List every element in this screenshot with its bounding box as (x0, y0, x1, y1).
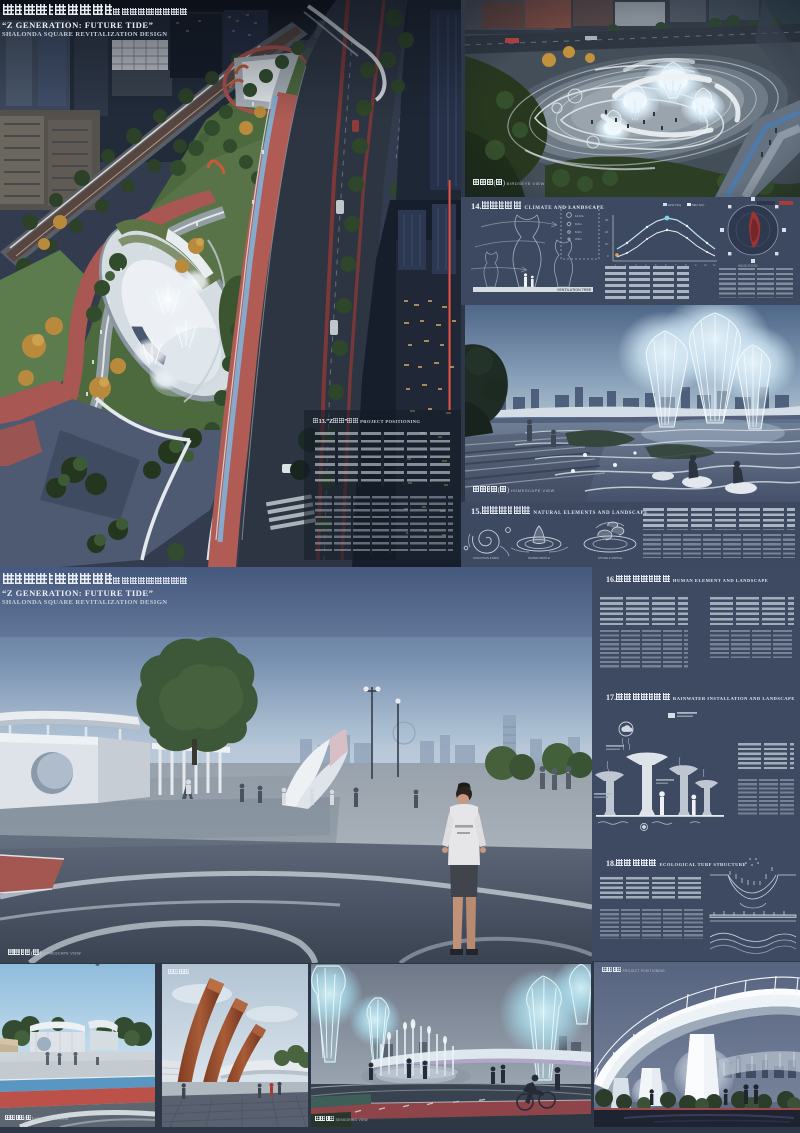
svg-text:6.0m: 6.0m (575, 230, 582, 234)
svg-text:3.0m: 3.0m (575, 237, 582, 241)
svg-text:0: 0 (607, 254, 609, 258)
svg-text:10: 10 (704, 263, 707, 267)
svg-text:12.0m: 12.0m (575, 214, 584, 218)
svg-text:WATER RIPPLE: WATER RIPPLE (528, 556, 550, 560)
svg-text:9.0m: 9.0m (575, 222, 582, 226)
svg-text:MOUNTAIN FORM: MOUNTAIN FORM (473, 556, 499, 560)
svg-text:VENTILATION TREE: VENTILATION TREE (557, 288, 592, 292)
svg-text:MIN.T(C): MIN.T(C) (692, 203, 704, 207)
svg-text:20: 20 (605, 230, 609, 234)
svg-text:AVG.T(C): AVG.T(C) (668, 203, 681, 207)
svg-text:9: 9 (695, 263, 697, 267)
svg-text:11: 11 (713, 263, 716, 267)
svg-text:10: 10 (605, 242, 609, 246)
svg-text:30: 30 (605, 218, 609, 222)
svg-text:STONE & RIPPLE: STONE & RIPPLE (598, 556, 623, 560)
